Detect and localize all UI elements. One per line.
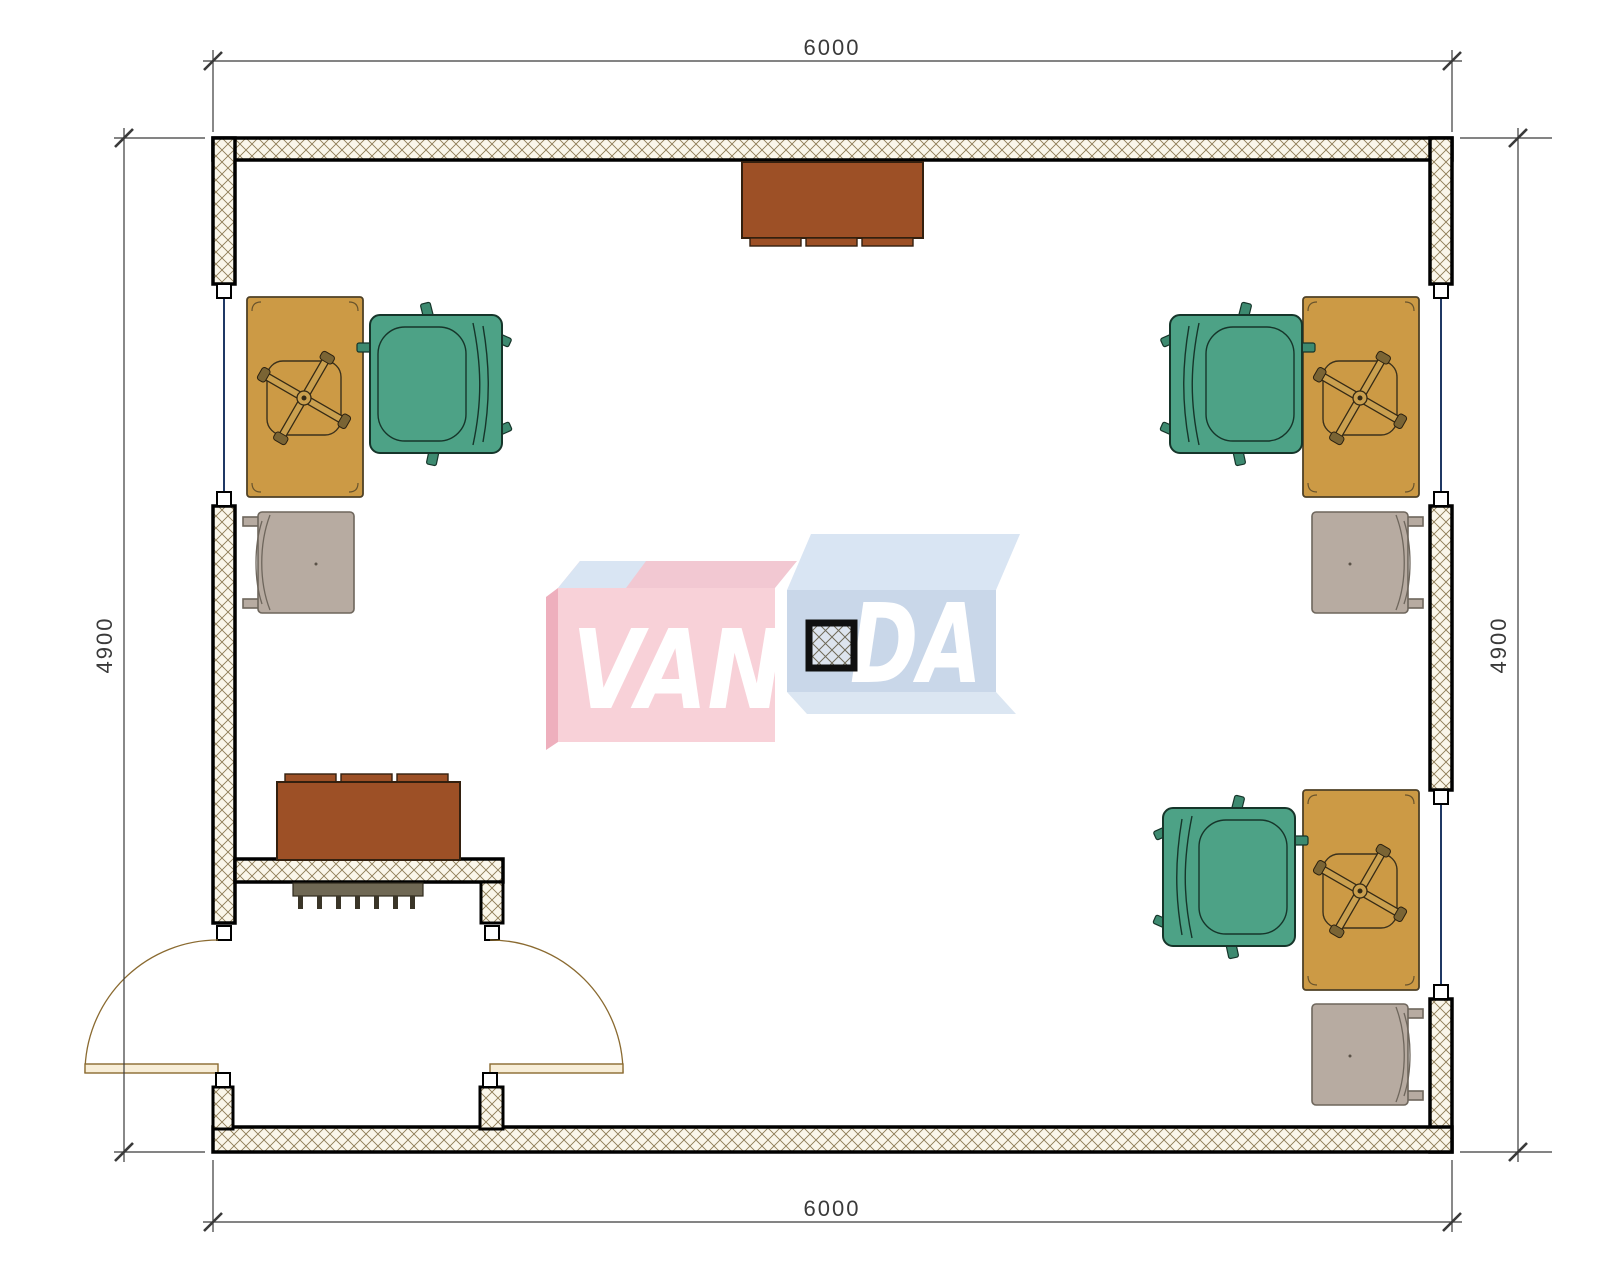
- side-chair-top-left: [243, 512, 354, 613]
- office-chair-top-left: [357, 302, 512, 466]
- workstation-top-right: [1160, 297, 1430, 613]
- vanda-logo: VAN DA: [546, 534, 1020, 750]
- office-chair-bottom-right: [1153, 795, 1308, 959]
- wall-left-lower: [213, 506, 235, 923]
- wall-bottom: [213, 1127, 1452, 1152]
- dimension-left: 4900: [92, 128, 205, 1162]
- door-jamb-right: [480, 1087, 503, 1129]
- door-swing-right: [490, 940, 623, 1073]
- wall-right-upper: [1430, 138, 1452, 284]
- side-chair-bottom-right: [1312, 1004, 1423, 1105]
- dimension-right: 4900: [1460, 128, 1552, 1162]
- dimension-top-label: 6000: [804, 35, 861, 60]
- window-right-lower-cap-top: [1434, 790, 1448, 804]
- cabinet-bottom-left: [277, 774, 460, 860]
- floor-plan-drawing: VAN DA 6000 6000 4900 4900: [0, 0, 1600, 1280]
- vestibule-jamb: [481, 882, 503, 923]
- logo-text-da: DA: [850, 580, 982, 708]
- radiator: [293, 883, 423, 909]
- side-chair-top-right: [1312, 512, 1423, 613]
- entry-double-door: [85, 940, 623, 1087]
- workstation-bottom-right: [1153, 790, 1430, 1105]
- dimension-top: 6000: [203, 35, 1462, 132]
- workstation-top-left: [234, 297, 512, 613]
- wall-right-middle: [1430, 506, 1452, 790]
- dimension-bottom: 6000: [203, 1160, 1462, 1232]
- vestibule-wall: [235, 859, 503, 882]
- vestibule-jamb-cap: [485, 926, 499, 940]
- dimension-left-label: 4900: [92, 617, 117, 674]
- wall-top: [213, 138, 1452, 160]
- window-right-lower-cap-bottom: [1434, 985, 1448, 999]
- door-leaf-right: [490, 1064, 623, 1073]
- floor-plan-page: VAN DA 6000 6000 4900 4900: [0, 0, 1600, 1280]
- logo-pink-box-side: [546, 588, 558, 750]
- wall-left-upper: [213, 138, 235, 284]
- wall-left-end-cap: [217, 926, 231, 940]
- door-swing-left: [85, 940, 218, 1073]
- door-cap-right: [483, 1073, 497, 1087]
- window-left-cap-top: [217, 284, 231, 298]
- window-left-cap-bottom: [217, 492, 231, 506]
- window-right-upper-cap-top: [1434, 284, 1448, 298]
- dimension-bottom-label: 6000: [804, 1196, 861, 1221]
- door-jamb-left: [213, 1087, 233, 1129]
- logo-text-van: VAN: [572, 606, 784, 734]
- door-leaf-left: [85, 1064, 218, 1073]
- office-chair-top-right: [1160, 302, 1315, 466]
- structural-column: [809, 623, 854, 668]
- cabinet-top: [742, 162, 923, 246]
- dimension-right-label: 4900: [1486, 617, 1511, 674]
- window-right-upper-cap-bottom: [1434, 492, 1448, 506]
- door-cap-left: [216, 1073, 230, 1087]
